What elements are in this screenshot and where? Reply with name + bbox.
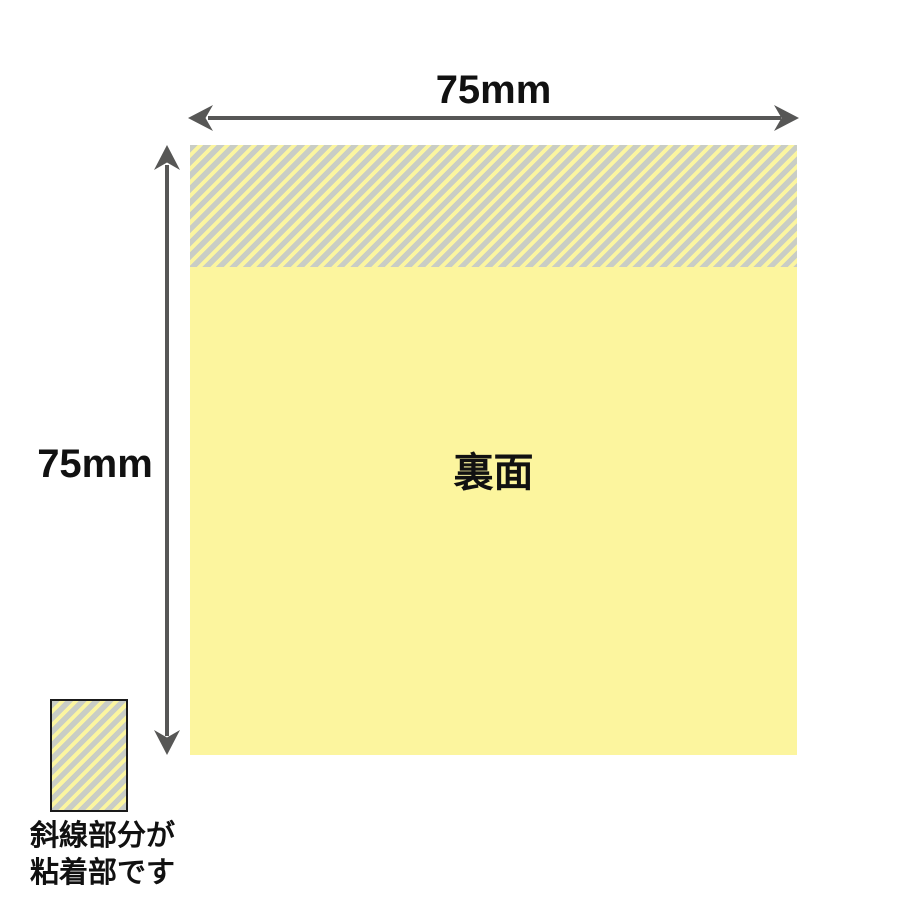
legend-caption-line-2: 粘着部です [30, 855, 175, 892]
width-dimension-label: 75mm [190, 70, 797, 110]
height-dimension-arrow [154, 145, 180, 755]
legend-caption: 斜線部分が 粘着部です [30, 818, 175, 892]
sticky-note-dimension-diagram: 75mm 75mm 裏面 斜線部分が 粘着部です [0, 0, 900, 900]
note-back-label: 裏面 [190, 453, 797, 493]
height-dimension-label: 75mm [36, 444, 154, 484]
sticky-note-back: 裏面 [190, 145, 797, 755]
legend-caption-line-1: 斜線部分が [30, 818, 175, 855]
adhesive-strip [190, 145, 797, 267]
legend-adhesive-swatch [50, 699, 128, 812]
